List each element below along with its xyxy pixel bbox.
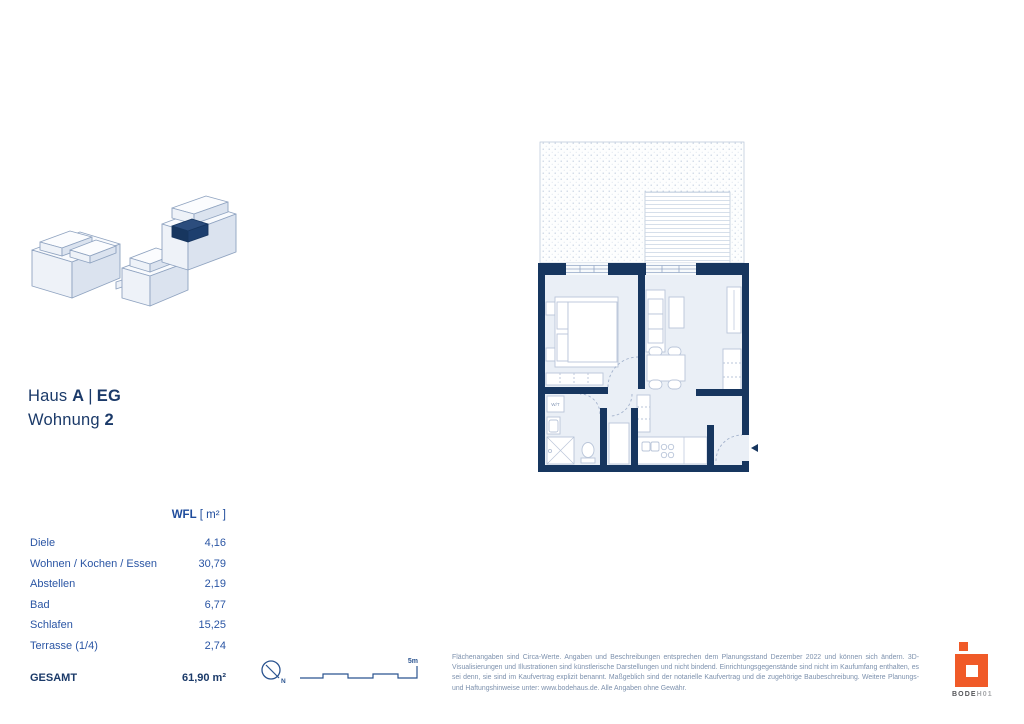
wall-bedroom-bath [545, 387, 608, 394]
area-table-header: WFL [ m² ] [30, 509, 226, 521]
coffee-table [669, 297, 684, 328]
wohnung-line: Wohnung 2 [28, 408, 121, 432]
kitchen-tall-unit [637, 395, 650, 432]
floor-value: EG [97, 387, 121, 405]
mattress [568, 302, 617, 362]
washer-dryer-label: W/T [551, 402, 560, 407]
table-row: Terrasse (1/4) 2,74 [30, 636, 226, 657]
area-table: WFL [ m² ] Diele 4,16 Wohnen / Kochen / … [30, 509, 226, 688]
room-label: Schlafen [30, 615, 73, 636]
logo-wordmark: BODEH01 [952, 691, 993, 698]
table-row: Abstellen 2,19 [30, 574, 226, 595]
table-row: Wohnen / Kochen / Essen 30,79 [30, 554, 226, 575]
room-value: 2,74 [205, 636, 226, 657]
wall-storage-kitchen [631, 408, 638, 465]
table-row: Diele 4,16 [30, 533, 226, 554]
sideboard [546, 373, 603, 385]
floor-plan: W/T [536, 136, 762, 476]
shelf-unit [723, 349, 741, 390]
sofa-cushion [648, 299, 663, 314]
kitchen-sink [642, 442, 650, 451]
wall-bedroom-living [638, 275, 645, 389]
room-label: Bad [30, 595, 50, 616]
unit-heading: Haus A|EG Wohnung 2 [28, 384, 121, 432]
chair [649, 380, 662, 389]
nightstand [546, 302, 555, 315]
kitchen-sink [651, 442, 659, 451]
nightstand [546, 348, 555, 361]
room-value: 6,77 [205, 595, 226, 616]
room-value: 30,79 [198, 554, 226, 575]
total-value: 61,90 m² [182, 668, 226, 689]
table-row: Schlafen 15,25 [30, 615, 226, 636]
sofa-cushion [648, 314, 663, 329]
storage-cabinet [609, 423, 629, 464]
disclaimer-text: Flächenangaben sind Circa-Werte. Angaben… [452, 653, 919, 694]
site-3d-illustration [26, 186, 238, 308]
scale-label: 5m [408, 658, 418, 665]
dining-table [647, 355, 685, 381]
wall-living-diele [696, 389, 742, 396]
room-value: 4,16 [205, 533, 226, 554]
chair [668, 380, 681, 389]
room-value: 2,19 [205, 574, 226, 595]
table-total-row: GESAMT 61,90 m² [30, 668, 226, 689]
brochure-page: Haus A|EG Wohnung 2 WFL [ m² ] Diele 4,1… [0, 0, 1024, 724]
pillow [557, 334, 568, 361]
wohnung-label: Wohnung [28, 411, 100, 429]
north-label: N [281, 678, 286, 685]
wfl-label: WFL [172, 509, 197, 521]
haus-line: Haus A|EG [28, 384, 121, 408]
logo-text-h01: H01 [977, 691, 993, 698]
haus-label: Haus [28, 387, 67, 405]
logo-mark-small-square [959, 642, 968, 651]
wohnung-value: 2 [105, 411, 114, 429]
sofa-cushion [648, 329, 663, 343]
room-value: 15,25 [198, 615, 226, 636]
wfl-unit: [ m² ] [200, 509, 226, 521]
total-label: GESAMT [30, 668, 77, 689]
room-label: Wohnen / Kochen / Essen [30, 554, 157, 575]
company-logo: BODEH01 [951, 640, 1013, 702]
logo-mark-inner-square [966, 665, 978, 677]
haus-value: A [72, 387, 84, 405]
toilet [582, 443, 594, 458]
table-row: Bad 6,77 [30, 595, 226, 616]
pillow [557, 302, 568, 329]
north-and-scale: N 5m [255, 650, 430, 692]
wall-bath-storage [600, 408, 607, 465]
room-label: Diele [30, 533, 55, 554]
room-label: Abstellen [30, 574, 75, 595]
logo-text-bode: BODE [952, 691, 977, 698]
room-label: Terrasse (1/4) [30, 636, 98, 657]
scale-bar [300, 666, 417, 678]
entrance-arrow-icon [751, 444, 758, 452]
wall-diele [707, 425, 714, 472]
separator: | [84, 387, 97, 405]
